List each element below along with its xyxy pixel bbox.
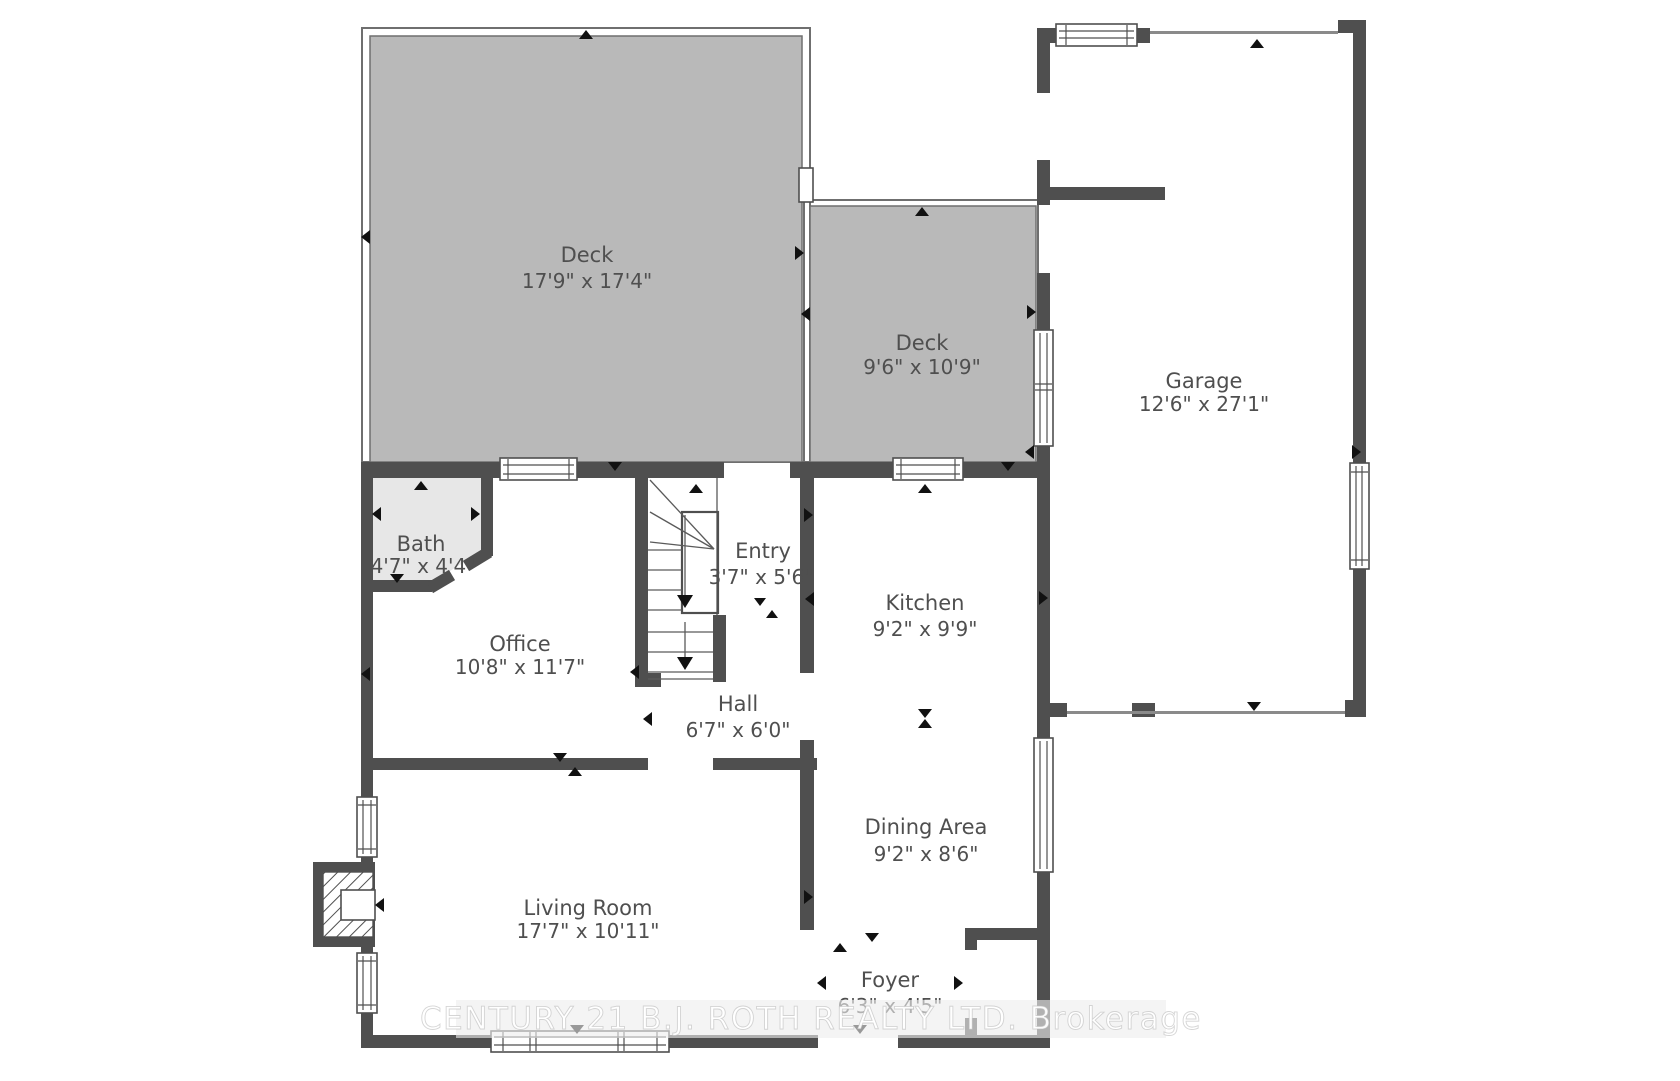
garage-top-window — [1056, 24, 1137, 46]
entry-name: Entry — [735, 539, 791, 563]
kitchen-dims: 9'2" x 9'9" — [873, 617, 978, 641]
watermark-text: CENTURY 21 B.J. ROTH REALTY LTD. Brokera… — [420, 1001, 1202, 1037]
office-name: Office — [489, 632, 550, 656]
living-name: Living Room — [524, 896, 653, 920]
deck-gate — [799, 168, 813, 202]
deck-large-name: Deck — [561, 243, 615, 267]
garage-name: Garage — [1166, 369, 1243, 393]
fireplace — [313, 862, 375, 947]
entry-dims: 3'7" x 5'6" — [709, 565, 814, 589]
garage-east-window — [1350, 463, 1369, 569]
kitchen-name: Kitchen — [886, 591, 965, 615]
dining-name: Dining Area — [865, 815, 988, 839]
watermark: CENTURY 21 B.J. ROTH REALTY LTD. Brokera… — [420, 1000, 1202, 1038]
foyer-name: Foyer — [861, 968, 920, 992]
dining-dims: 9'2" x 8'6" — [874, 842, 979, 866]
living-left-window-upper — [357, 797, 377, 857]
office-window — [500, 458, 577, 480]
bath-dims: 4'7" x 4'4" — [371, 554, 476, 578]
deck-small-dims: 9'6" x 10'9" — [863, 355, 981, 379]
hall-dims: 6'7" x 6'0" — [686, 718, 791, 742]
deck-small-name: Deck — [896, 331, 950, 355]
living-left-window-lower — [357, 953, 377, 1013]
deck-large-dims: 17'9" x 17'4" — [522, 269, 652, 293]
floor-plan: Deck 17'9" x 17'4" Deck 9'6" x 10'9" Gar… — [0, 0, 1680, 1081]
hall-name: Hall — [718, 692, 758, 716]
living-dims: 17'7" x 10'11" — [516, 919, 659, 943]
kitchen-window — [893, 458, 963, 480]
staircase — [648, 478, 718, 679]
floor-plan-canvas: Deck 17'9" x 17'4" Deck 9'6" x 10'9" Gar… — [0, 0, 1680, 1081]
bath-name: Bath — [397, 532, 446, 556]
deck-garage-window — [1034, 330, 1053, 446]
dining-window — [1034, 738, 1053, 872]
garage-dims: 12'6" x 27'1" — [1139, 392, 1269, 416]
office-dims: 10'8" x 11'7" — [455, 655, 585, 679]
